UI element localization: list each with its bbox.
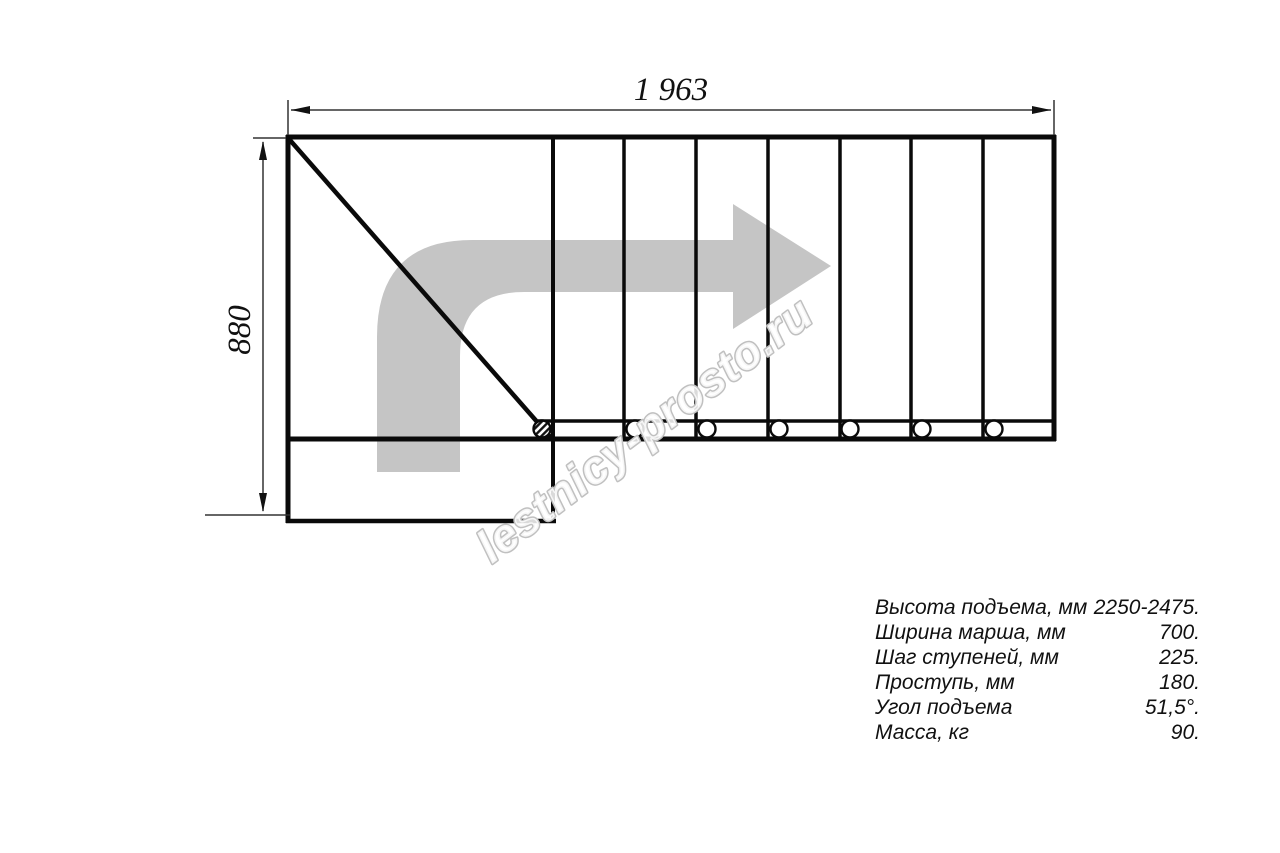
spec-row-flight-width: Ширина марша, мм 700.: [875, 620, 1200, 645]
dimension-arrow: [259, 493, 267, 512]
baluster-circle: [986, 421, 1003, 438]
spec-row-tread: Проступь, мм 180.: [875, 670, 1200, 695]
dimension-arrow: [1032, 106, 1051, 114]
staircase-drawing-page: 1 963 880 lestnicy-prosto.ru Высота подъ…: [0, 0, 1280, 853]
baluster-circle: [771, 421, 788, 438]
spec-row-step-pitch: Шаг ступеней, мм 225.: [875, 645, 1200, 670]
dimension-arrow: [259, 141, 267, 160]
spec-value: 51,5°.: [1145, 695, 1200, 720]
spec-label: Масса, кг: [875, 720, 969, 745]
newel-hatched-circle: [534, 421, 551, 438]
height-dimension-label: 880: [222, 305, 258, 355]
spec-label: Высота подъема, мм: [875, 595, 1087, 620]
baluster-circle: [914, 421, 931, 438]
spec-value: 180.: [1159, 670, 1200, 695]
spec-row-height: Высота подъема, мм 2250-2475.: [875, 595, 1200, 620]
spec-label: Проступь, мм: [875, 670, 1015, 695]
width-dimension-label: 1 963: [634, 72, 708, 108]
spec-value: 2250-2475.: [1094, 595, 1200, 620]
spec-label: Угол подъема: [875, 695, 1012, 720]
spec-value: 225.: [1159, 645, 1200, 670]
baluster-circle: [842, 421, 859, 438]
spec-label: Шаг ступеней, мм: [875, 645, 1059, 670]
dimension-arrow: [291, 106, 310, 114]
spec-row-angle: Угол подъема 51,5°.: [875, 695, 1200, 720]
spec-value: 700.: [1159, 620, 1200, 645]
baluster-circle: [699, 421, 716, 438]
spec-label: Ширина марша, мм: [875, 620, 1066, 645]
spec-value: 90.: [1171, 720, 1200, 745]
spec-row-mass: Масса, кг 90.: [875, 720, 1200, 745]
spec-table: Высота подъема, мм 2250-2475. Ширина мар…: [875, 595, 1200, 745]
